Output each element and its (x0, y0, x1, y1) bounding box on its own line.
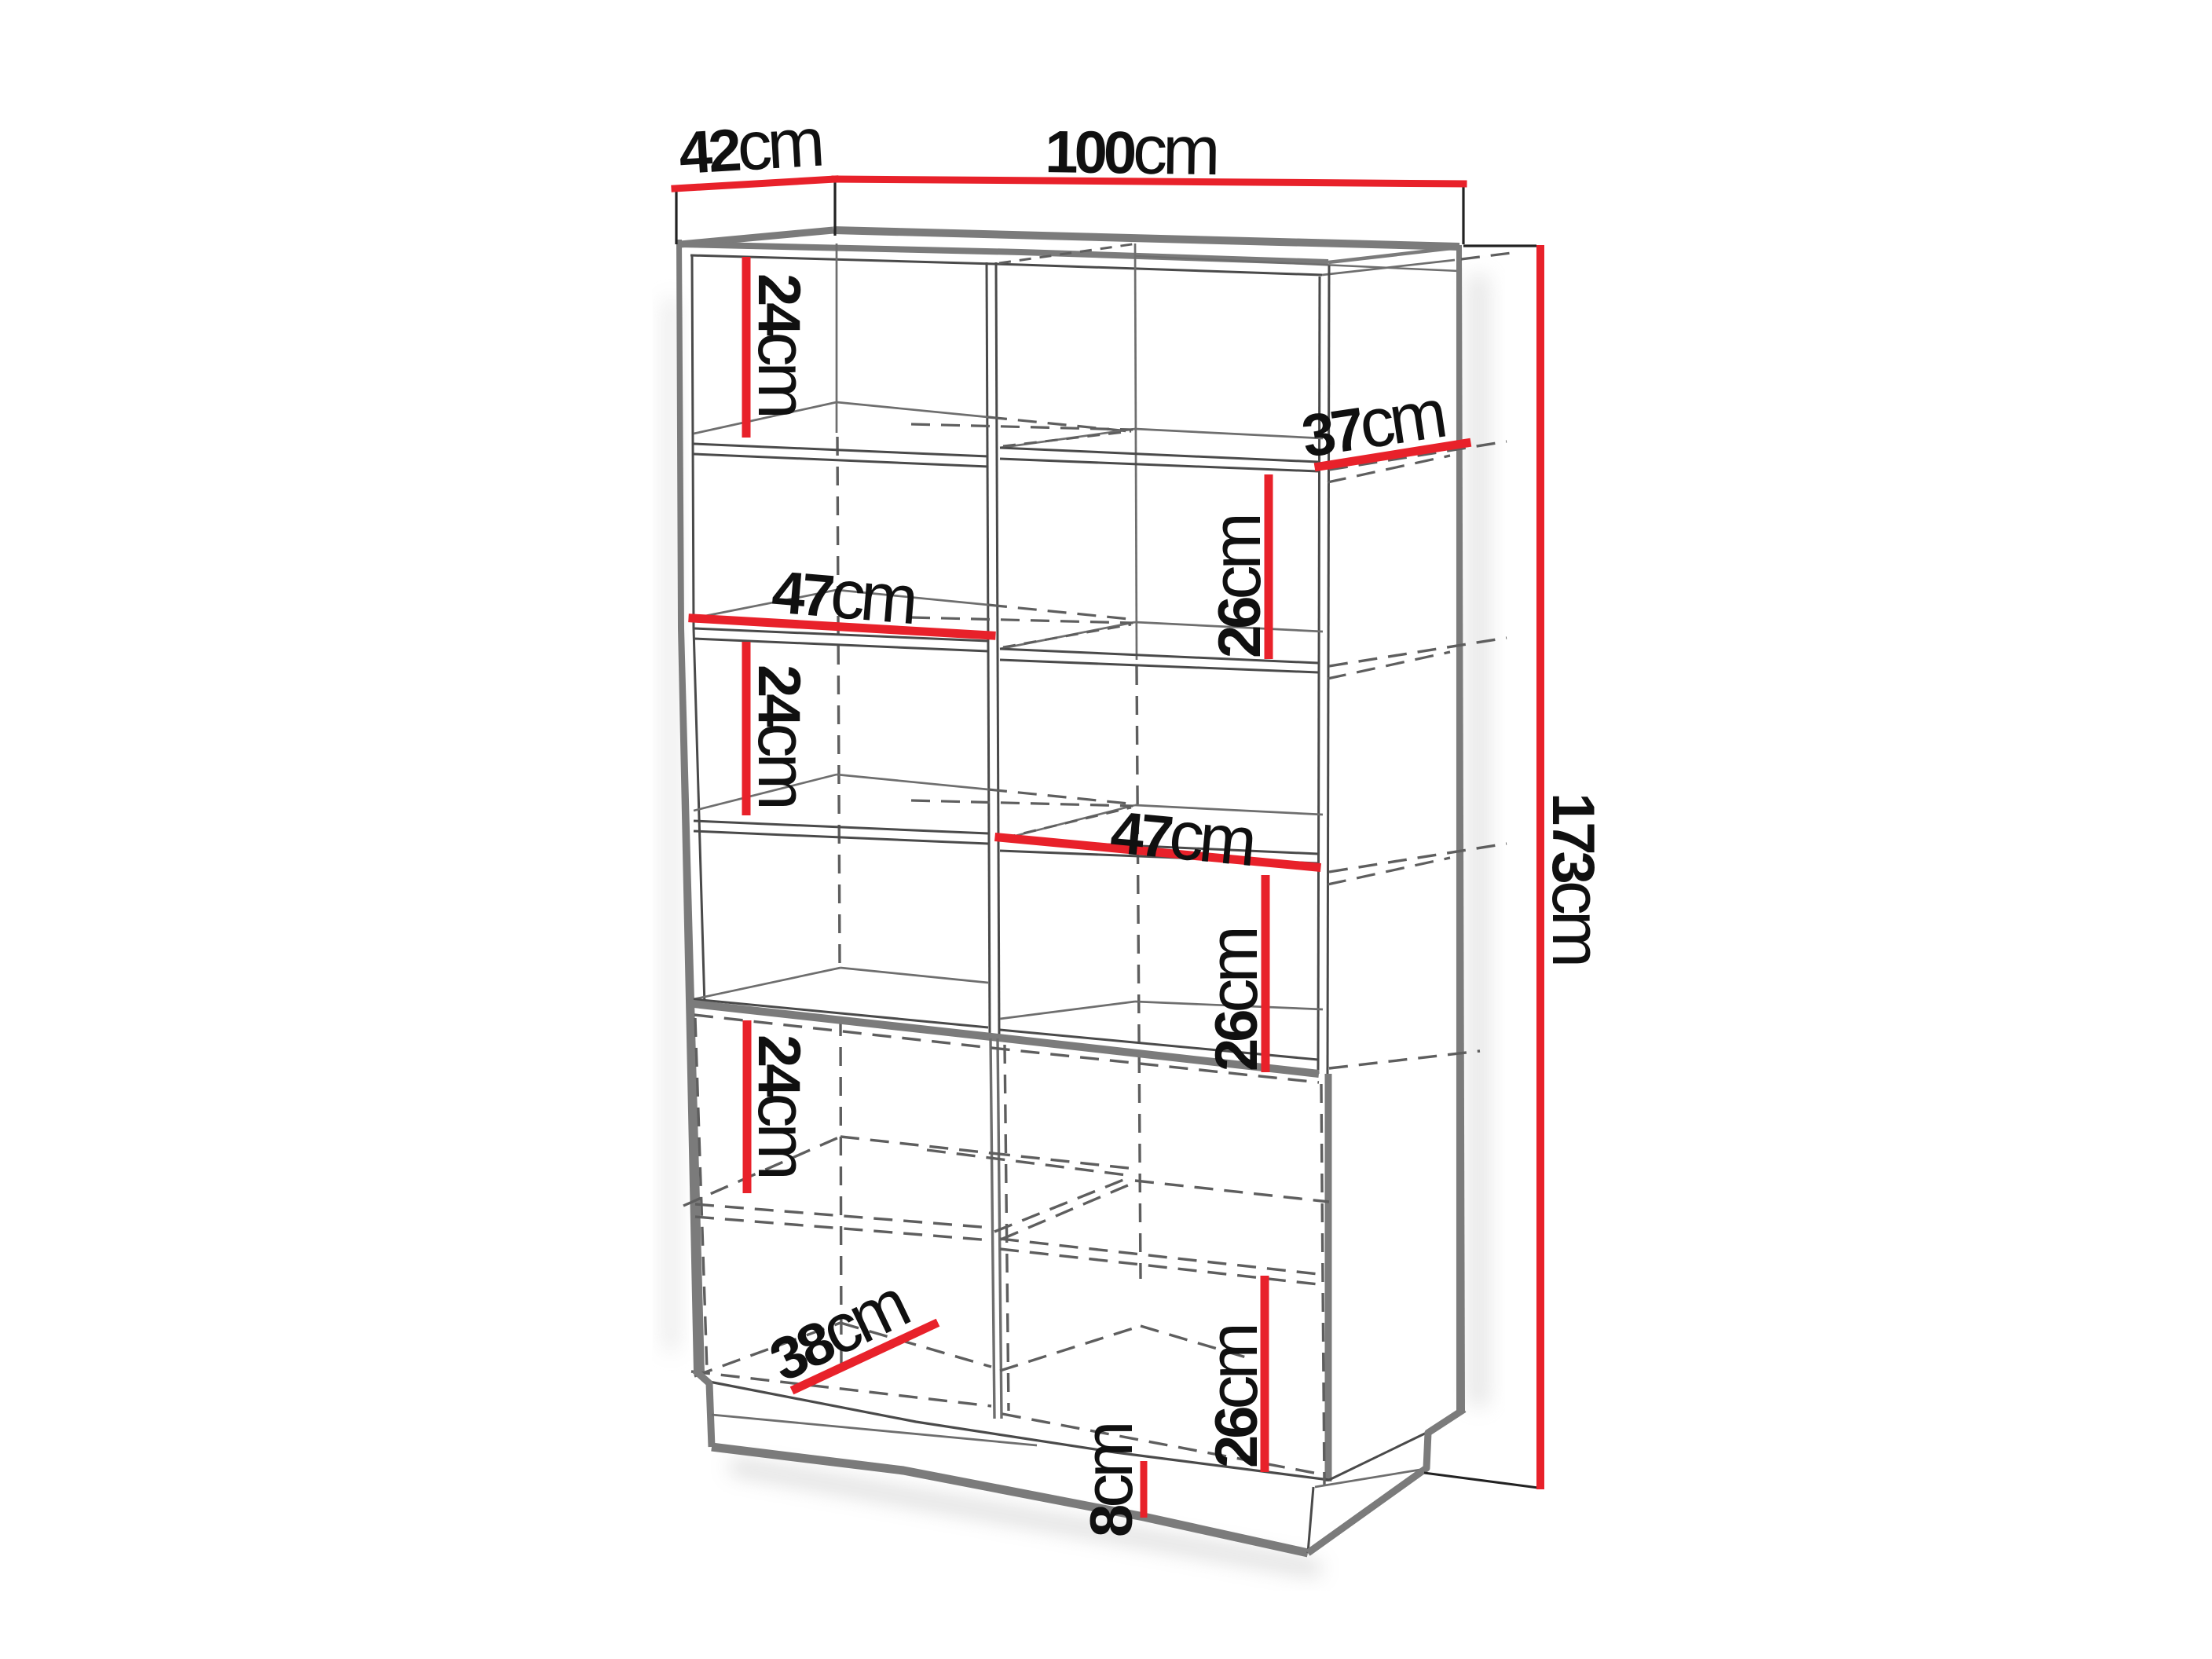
svg-text:26cm: 26cm (1194, 1326, 1272, 1468)
svg-text:173cm: 173cm (1538, 793, 1616, 964)
svg-text:24cm: 24cm (744, 273, 822, 416)
svg-text:24cm: 24cm (744, 1035, 822, 1177)
svg-text:100cm: 100cm (1045, 109, 1217, 189)
svg-text:47cm: 47cm (769, 549, 917, 639)
svg-text:26cm: 26cm (1194, 929, 1272, 1071)
svg-text:26cm: 26cm (1197, 516, 1275, 658)
svg-text:47cm: 47cm (1108, 789, 1256, 881)
svg-text:8cm: 8cm (1069, 1425, 1147, 1537)
svg-text:24cm: 24cm (744, 665, 822, 807)
